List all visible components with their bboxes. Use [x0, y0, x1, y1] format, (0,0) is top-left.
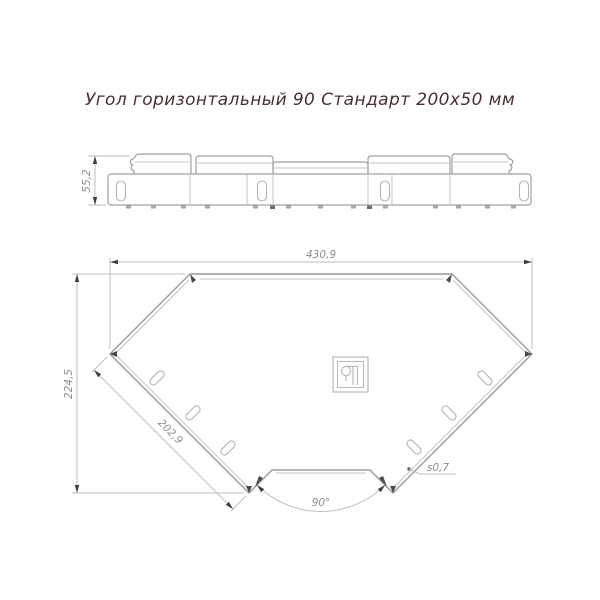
drawing-canvas: 55,2	[0, 0, 600, 600]
side-view-bottom-tabs	[126, 205, 516, 209]
plan-view-fold-lines	[116, 279, 526, 487]
plan-view: 430,9 224,5 202,9	[63, 249, 532, 512]
manufacturer-logo-icon	[333, 357, 368, 392]
plan-view-slots-right	[406, 370, 494, 456]
dimension-end-width-202-9: 202,9	[92, 357, 246, 511]
side-view-segment-lines	[190, 174, 450, 205]
dim-text-90-deg: 90°	[312, 497, 331, 509]
side-view-top-profile	[130, 154, 512, 174]
technical-drawing: Угол горизонтальный 90 Стандарт 200x50 м…	[0, 0, 600, 600]
side-view: 55,2	[81, 154, 531, 209]
side-view-slots	[117, 181, 529, 201]
dimension-angle-90: 90°	[257, 485, 385, 512]
dim-text-55-2: 55,2	[81, 169, 93, 193]
side-view-body	[108, 174, 531, 205]
dimension-width-430-9: 430,9	[110, 249, 532, 349]
plan-view-outline	[110, 274, 532, 493]
dim-text-202-9: 202,9	[155, 417, 185, 447]
dim-text-430-9: 430,9	[306, 249, 336, 261]
plan-view-slots-left	[149, 370, 237, 457]
dim-text-224-5: 224,5	[63, 369, 75, 399]
plan-view-bend-darts	[110, 274, 532, 493]
dim-text-s0-7: s0,7	[427, 462, 449, 474]
